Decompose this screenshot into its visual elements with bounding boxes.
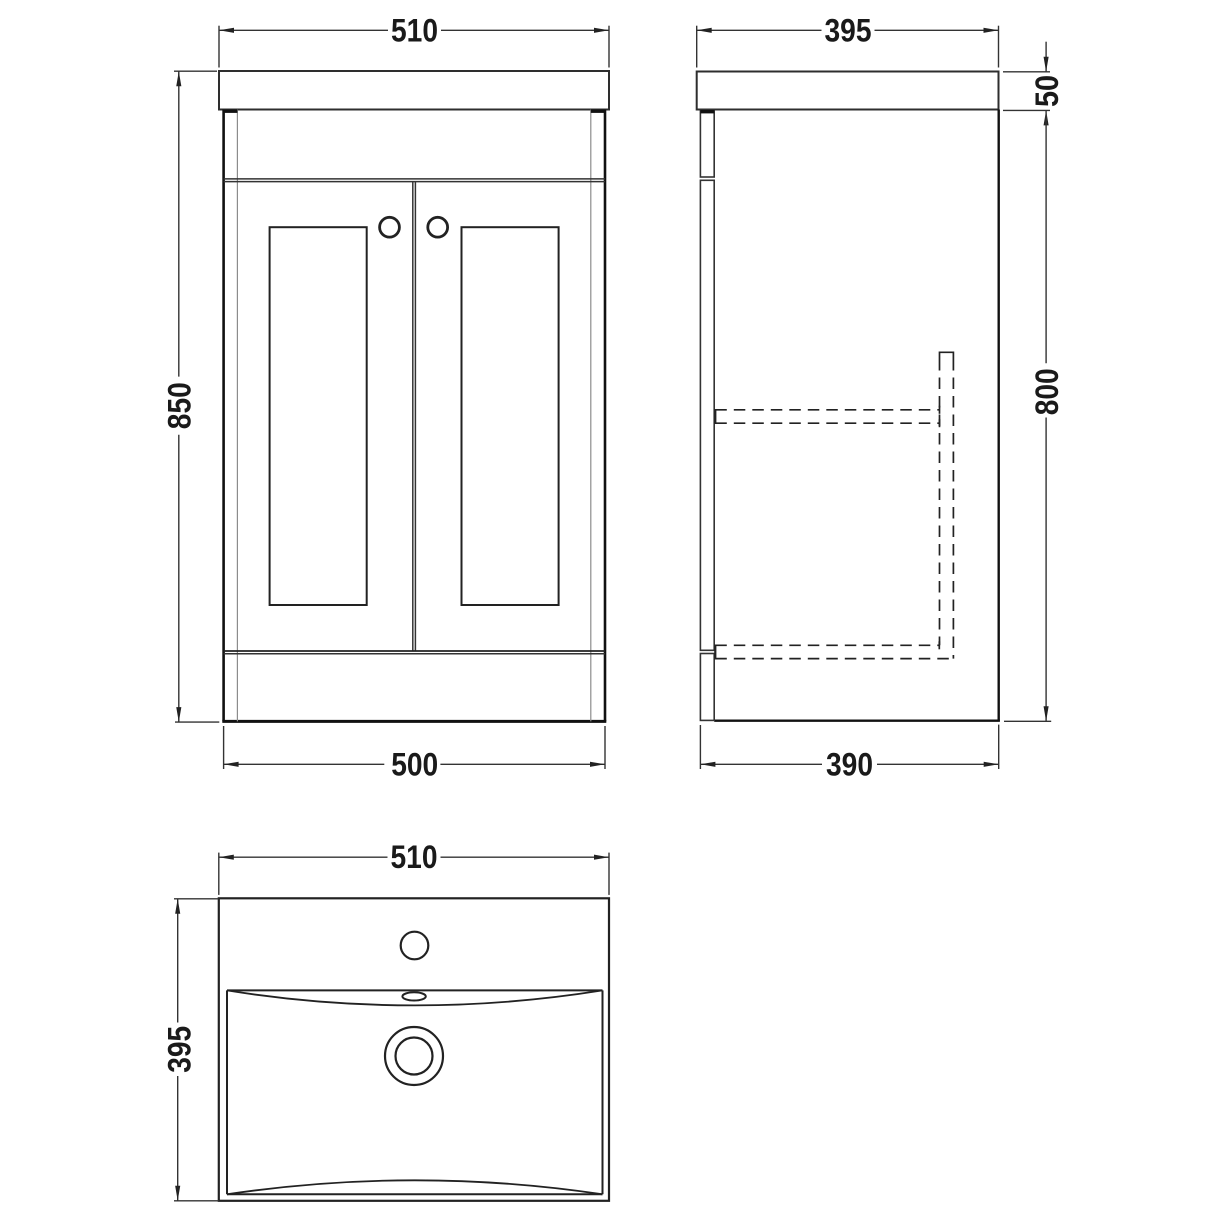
svg-text:500: 500: [391, 746, 438, 782]
svg-text:850: 850: [161, 382, 197, 429]
svg-text:395: 395: [825, 12, 872, 48]
svg-text:50: 50: [1029, 75, 1065, 107]
svg-text:510: 510: [391, 12, 438, 48]
svg-text:800: 800: [1029, 368, 1065, 415]
svg-text:510: 510: [391, 839, 438, 875]
svg-text:395: 395: [161, 1026, 197, 1073]
svg-text:390: 390: [826, 746, 873, 782]
